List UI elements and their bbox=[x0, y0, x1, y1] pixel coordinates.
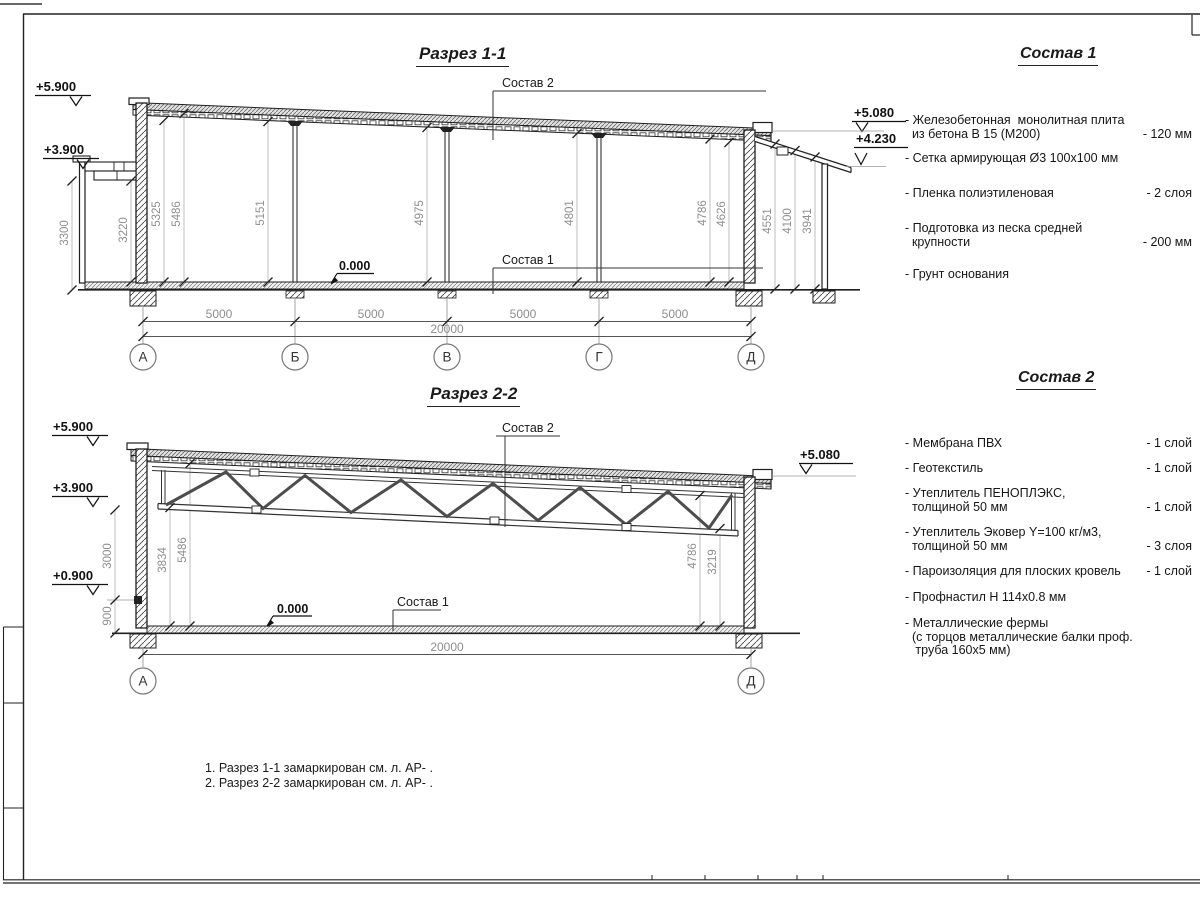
total-dim: 20000 bbox=[430, 640, 463, 654]
layer-value: - 120 мм bbox=[1143, 128, 1192, 142]
section-2-2-drawing bbox=[52, 436, 856, 695]
list-item: - Пароизоляция для плоских кровель - 1 с… bbox=[905, 565, 1192, 579]
elevation-mark: +3.900 bbox=[44, 142, 84, 157]
h-dim: 5000 bbox=[358, 307, 385, 321]
section-2-title: Разрез 2-2 bbox=[427, 384, 520, 407]
list-item: - Грунт основания bbox=[905, 268, 1192, 282]
sostav2-callout-s2: Состав 2 bbox=[502, 421, 554, 435]
list-item: - Сетка армирующая Ø3 100х100 мм bbox=[905, 152, 1192, 166]
section-1-title: Разрез 1-1 bbox=[416, 44, 509, 67]
list-item: - Пленка полиэтиленовая - 2 слоя bbox=[905, 187, 1192, 201]
layer-value: - 200 мм bbox=[1143, 236, 1192, 250]
note-line: 1. Разрез 1-1 замаркирован см. л. АР- . bbox=[205, 761, 433, 776]
layer-name: - Геотекстиль bbox=[905, 462, 1143, 476]
layer-value: - 1 слой bbox=[1146, 565, 1192, 579]
layer-name: - Утеплитель Эковер Y=100 кг/м3, толщино… bbox=[905, 526, 1143, 553]
v-dim: 4786 bbox=[697, 200, 709, 226]
layer-name: - Профнастил Н 114х0.8 мм bbox=[905, 591, 1143, 605]
v-dim: 4801 bbox=[564, 200, 576, 226]
sostav1-callout-s2: Состав 1 bbox=[397, 595, 449, 609]
v-dim: 5151 bbox=[255, 200, 267, 226]
note-line: 2. Разрез 2-2 замаркирован см. л. АР- . bbox=[205, 776, 433, 791]
elevation-mark: +4.230 bbox=[856, 131, 896, 146]
v-dim: 4786 bbox=[687, 543, 699, 569]
layer-value: - 1 слой bbox=[1146, 462, 1192, 476]
zero-level-s1: 0.000 bbox=[339, 259, 370, 273]
layer-name: - Пленка полиэтиленовая bbox=[905, 187, 1143, 201]
v-dim: 4551 bbox=[762, 208, 774, 234]
elevation-mark: +5.080 bbox=[854, 105, 894, 120]
total-dim: 20000 bbox=[430, 322, 463, 336]
list-item: - Профнастил Н 114х0.8 мм bbox=[905, 591, 1192, 605]
elevation-mark: +5.900 bbox=[36, 79, 76, 94]
axis-label: А bbox=[138, 674, 147, 689]
layer-value: - 1 слой bbox=[1146, 437, 1192, 451]
elevation-mark: +0.900 bbox=[53, 568, 93, 583]
list-item: - Утеплитель ПЕНОПЛЭКС, толщиной 50 мм -… bbox=[905, 487, 1192, 514]
layer-name: - Утеплитель ПЕНОПЛЭКС, толщиной 50 мм bbox=[905, 487, 1143, 514]
v-dim: 3300 bbox=[59, 220, 71, 246]
list-item: - Геотекстиль - 1 слой bbox=[905, 462, 1192, 476]
v-dim: 5325 bbox=[151, 201, 163, 227]
axis-label: А bbox=[138, 350, 147, 365]
layer-value: - 2 слоя bbox=[1147, 187, 1192, 201]
v-dim: 5486 bbox=[171, 201, 183, 227]
elevation-mark: +5.900 bbox=[53, 419, 93, 434]
v-dim: 900 bbox=[102, 606, 114, 625]
layer-name: - Подготовка из песка средней крупности bbox=[905, 222, 1143, 249]
sostav2-panel-title: Состав 2 bbox=[1016, 369, 1096, 390]
drawing-sheet: Разрез 1-1 Состав 2 Состав 1 0.000 +5.90… bbox=[0, 0, 1200, 900]
sostav1-callout-s1: Состав 1 bbox=[502, 253, 554, 267]
axis-label: Д bbox=[746, 674, 755, 689]
v-dim: 3834 bbox=[157, 547, 169, 573]
axis-label: В bbox=[442, 350, 451, 365]
section-1-1-drawing bbox=[35, 91, 908, 370]
axis-label: Г bbox=[595, 350, 602, 365]
v-dim: 4626 bbox=[716, 201, 728, 227]
h-dim: 5000 bbox=[510, 307, 537, 321]
v-dim: 4975 bbox=[414, 200, 426, 226]
list-item: - Железобетонная монолитная плита из бет… bbox=[905, 114, 1192, 141]
layer-value: - 1 слой bbox=[1146, 501, 1192, 515]
v-dim: 3000 bbox=[102, 543, 114, 569]
layer-name: - Грунт основания bbox=[905, 268, 1143, 282]
v-dim: 5486 bbox=[177, 537, 189, 563]
zero-level-s2: 0.000 bbox=[277, 602, 308, 616]
list-item: - Металлические фермы (с торцов металлич… bbox=[905, 617, 1192, 658]
sostav2-callout-s1: Состав 2 bbox=[502, 76, 554, 90]
v-dim: 4100 bbox=[782, 208, 794, 234]
elevation-mark: +3.900 bbox=[53, 480, 93, 495]
layer-name: - Пароизоляция для плоских кровель bbox=[905, 565, 1143, 579]
layer-value: - 3 слоя bbox=[1147, 540, 1192, 554]
elevation-mark: +5.080 bbox=[800, 447, 840, 462]
list-item: - Мембрана ПВХ - 1 слой bbox=[905, 437, 1192, 451]
h-dim: 5000 bbox=[662, 307, 689, 321]
layer-name: - Железобетонная монолитная плита из бет… bbox=[905, 114, 1143, 141]
list-item: - Подготовка из песка средней крупности … bbox=[905, 222, 1192, 249]
layer-name: - Сетка армирующая Ø3 100х100 мм bbox=[905, 152, 1143, 166]
v-dim: 3220 bbox=[118, 217, 130, 243]
axis-label: Д bbox=[746, 350, 755, 365]
layer-name: - Металлические фермы (с торцов металлич… bbox=[905, 617, 1143, 658]
sostav1-panel-title: Состав 1 bbox=[1018, 45, 1098, 66]
h-dim: 5000 bbox=[206, 307, 233, 321]
axis-label: Б bbox=[291, 350, 300, 365]
v-dim: 3219 bbox=[707, 549, 719, 575]
layer-name: - Мембрана ПВХ bbox=[905, 437, 1143, 451]
list-item: - Утеплитель Эковер Y=100 кг/м3, толщино… bbox=[905, 526, 1192, 553]
v-dim: 3941 bbox=[802, 208, 814, 234]
